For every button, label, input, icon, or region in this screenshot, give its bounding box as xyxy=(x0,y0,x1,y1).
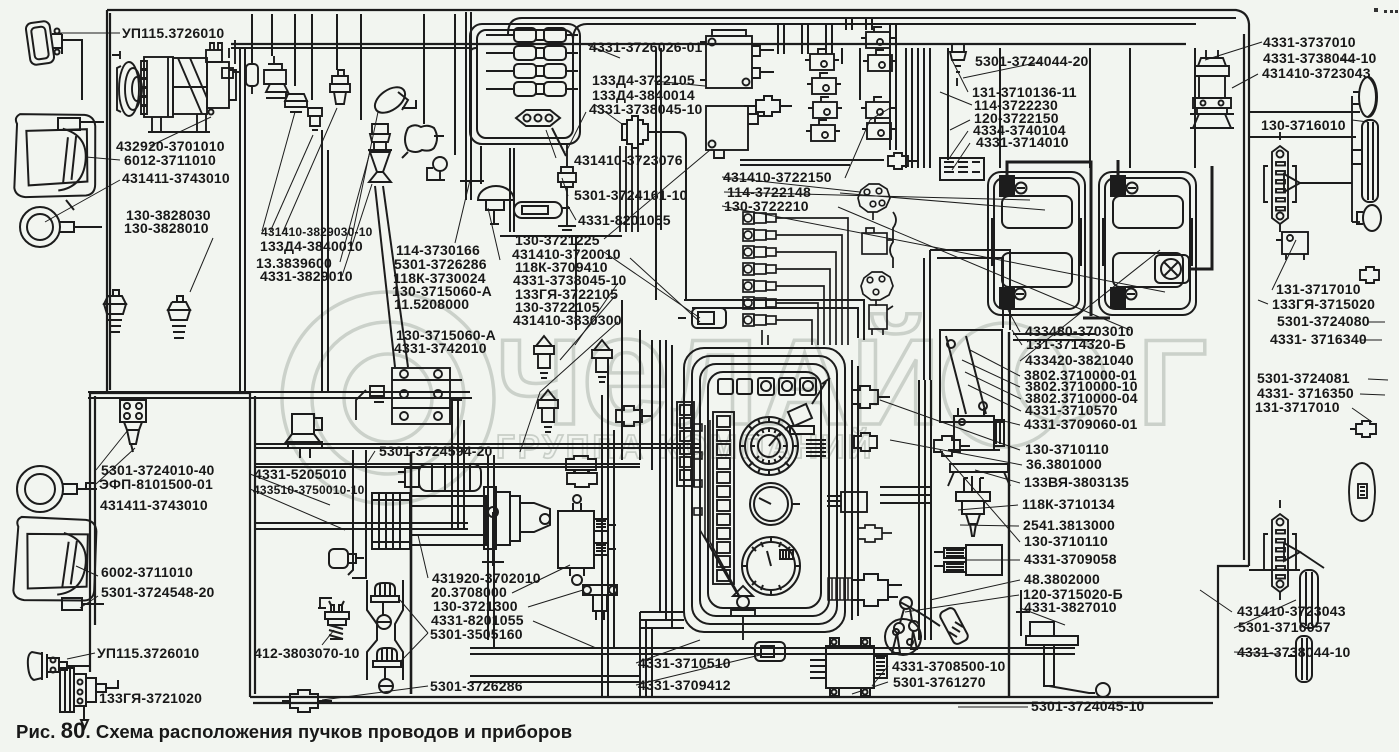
svg-text:5301-3505160: 5301-3505160 xyxy=(430,626,523,642)
svg-text:4331-3738045-10: 4331-3738045-10 xyxy=(589,101,703,117)
svg-text:5301-3724161-10: 5301-3724161-10 xyxy=(574,187,688,203)
svg-text:431410-3830300: 431410-3830300 xyxy=(513,312,622,328)
svg-text:2541.3813000: 2541.3813000 xyxy=(1023,517,1115,533)
svg-text:133Д4-3840010: 133Д4-3840010 xyxy=(260,238,363,254)
svg-text:4331-3742010: 4331-3742010 xyxy=(394,340,487,356)
svg-text:ЭФП-8101500-01: ЭФП-8101500-01 xyxy=(99,476,213,492)
svg-text:5301-3716057: 5301-3716057 xyxy=(1238,619,1331,635)
svg-text:4331-3709412: 4331-3709412 xyxy=(638,677,731,693)
svg-text:6012-3711010: 6012-3711010 xyxy=(124,152,216,168)
svg-text:130-3710110: 130-3710110 xyxy=(1025,441,1109,457)
svg-text:5301-3724081: 5301-3724081 xyxy=(1257,370,1350,386)
svg-text:4331-3737010: 4331-3737010 xyxy=(1263,34,1356,50)
svg-text:5301-3724045-10: 5301-3724045-10 xyxy=(1031,698,1145,714)
svg-text:36.3801000: 36.3801000 xyxy=(1026,456,1102,472)
svg-text:5301-3724044-20: 5301-3724044-20 xyxy=(975,53,1089,69)
svg-text:130-3828010: 130-3828010 xyxy=(124,220,209,236)
svg-text:4331-3714010: 4331-3714010 xyxy=(976,134,1069,150)
svg-text:133ГЯ-3721020: 133ГЯ-3721020 xyxy=(99,690,202,706)
svg-text:5301-3726286: 5301-3726286 xyxy=(430,678,523,694)
svg-text:433510-3750010-10: 433510-3750010-10 xyxy=(253,483,365,497)
svg-text:130-3716010: 130-3716010 xyxy=(1261,117,1346,133)
svg-text:4331-3709060-01: 4331-3709060-01 xyxy=(1024,416,1138,432)
svg-text:131-3717010: 131-3717010 xyxy=(1276,281,1361,297)
svg-text:130-3710110: 130-3710110 xyxy=(1024,533,1108,549)
svg-text:431411-3743010: 431411-3743010 xyxy=(122,170,230,186)
svg-text:131-3714320-Б: 131-3714320-Б xyxy=(1026,336,1126,352)
svg-text:133Д4-3722105: 133Д4-3722105 xyxy=(592,72,695,88)
svg-text:5301-3761270: 5301-3761270 xyxy=(893,674,986,690)
svg-text:ГРУППА КОМПАНИЙ: ГРУППА КОМПАНИЙ xyxy=(496,427,874,465)
svg-text:412-3803070-10: 412-3803070-10 xyxy=(254,645,360,661)
svg-text:133ГЯ-3715020: 133ГЯ-3715020 xyxy=(1272,296,1375,312)
svg-text:4331-3738044-10: 4331-3738044-10 xyxy=(1263,50,1377,66)
svg-text:4331-3709058: 4331-3709058 xyxy=(1024,551,1117,567)
svg-text:133ВЯ-3803135: 133ВЯ-3803135 xyxy=(1024,474,1129,490)
svg-text:5301-3724548-20: 5301-3724548-20 xyxy=(101,584,215,600)
svg-text:130-3722210: 130-3722210 xyxy=(724,198,809,214)
svg-text:431410-3723076: 431410-3723076 xyxy=(574,152,683,168)
svg-text:431410-3723043: 431410-3723043 xyxy=(1262,65,1371,81)
svg-text:4331-3708500-10: 4331-3708500-10 xyxy=(892,658,1006,674)
svg-text:Рис. 80. Схема расположения пу: Рис. 80. Схема расположения пучков прово… xyxy=(16,718,572,743)
svg-text:5301-3724594-20: 5301-3724594-20 xyxy=(379,443,493,459)
svg-text:433420-3821040: 433420-3821040 xyxy=(1025,352,1134,368)
svg-text:11.5208000: 11.5208000 xyxy=(394,296,469,312)
svg-text:4331-3710510: 4331-3710510 xyxy=(638,655,731,671)
svg-text:6002-3711010: 6002-3711010 xyxy=(101,564,193,580)
svg-text:431411-3743010: 431411-3743010 xyxy=(100,497,208,513)
svg-text:431410-3722150: 431410-3722150 xyxy=(723,169,832,185)
svg-text:4331-3726026-01: 4331-3726026-01 xyxy=(589,39,703,55)
svg-text:УП115.3726010: УП115.3726010 xyxy=(97,645,199,661)
svg-text:431410-3829030-10: 431410-3829030-10 xyxy=(261,225,373,239)
svg-text:5301-3724080: 5301-3724080 xyxy=(1277,313,1370,329)
svg-text:131-3717010: 131-3717010 xyxy=(1255,399,1340,415)
svg-text:4331-8201055: 4331-8201055 xyxy=(578,212,671,228)
svg-text:4331-5205010: 4331-5205010 xyxy=(254,466,347,482)
svg-text:4331- 3716340: 4331- 3716340 xyxy=(1270,331,1367,347)
svg-text:48.3802000: 48.3802000 xyxy=(1024,571,1100,587)
svg-text:4331-3827010: 4331-3827010 xyxy=(1024,599,1117,615)
svg-text:118К-3710134: 118К-3710134 xyxy=(1022,496,1115,512)
svg-text:УП115.3726010: УП115.3726010 xyxy=(122,25,224,41)
svg-text:Г: Г xyxy=(1138,314,1207,450)
svg-text:4331-3738044-10: 4331-3738044-10 xyxy=(1237,644,1351,660)
svg-text:431410-3723043: 431410-3723043 xyxy=(1237,603,1346,619)
svg-text:4331-3829010: 4331-3829010 xyxy=(260,268,353,284)
